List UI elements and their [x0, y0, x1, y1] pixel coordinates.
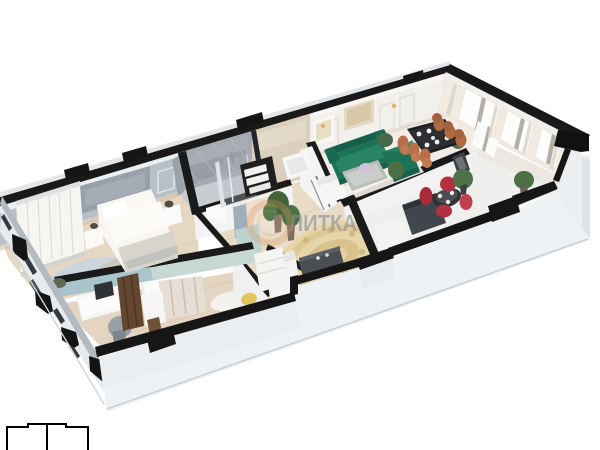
svg-text:ЛИТКА: ЛИТКА [289, 210, 357, 236]
